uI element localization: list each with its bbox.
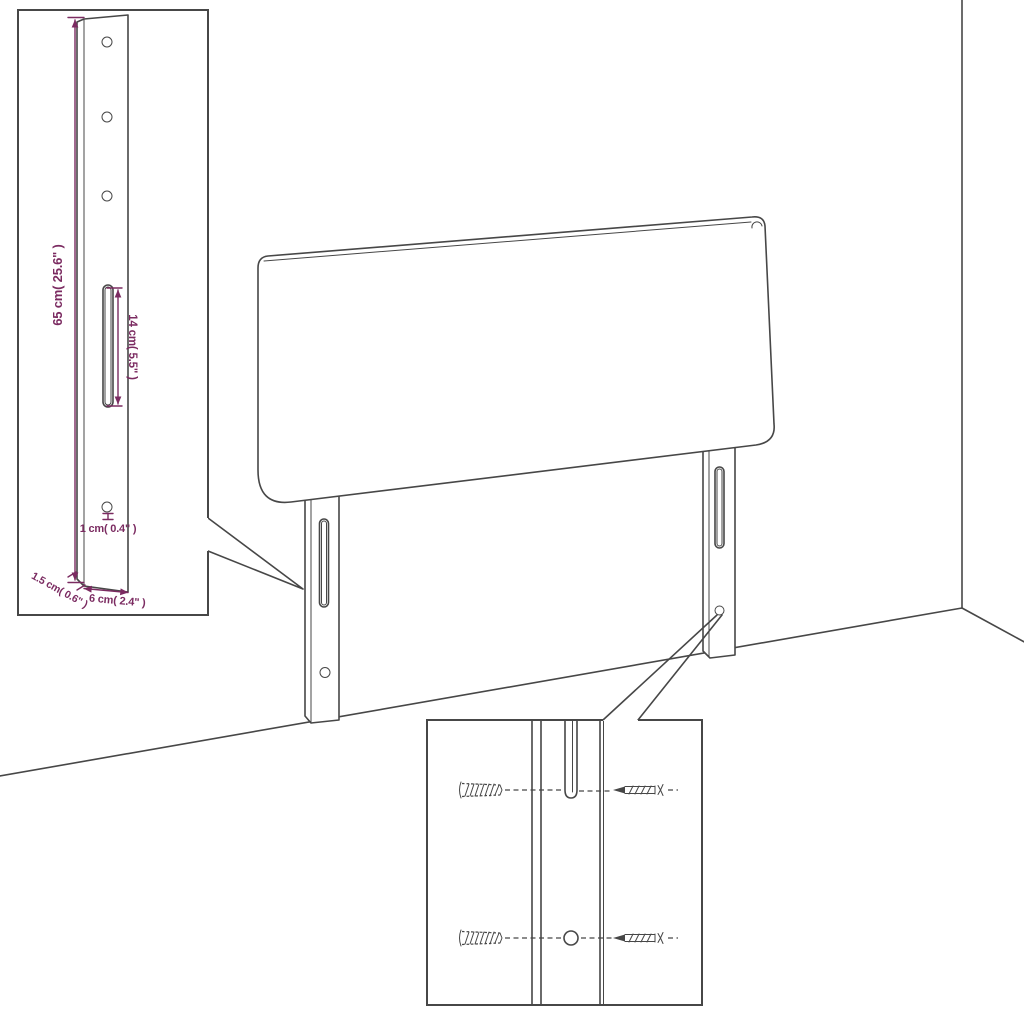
diagram-canvas: 65 cm( 25.6" ) 14 cm( 5.5" ) 1 cm( 0.4" … [0, 0, 1024, 1024]
dim-hole-diameter-label: 1 cm( 0.4" ) [80, 523, 137, 535]
dim-slot-length-label: 14 cm( 5.5" ) [126, 314, 138, 380]
panel-outline [258, 217, 774, 503]
headboard-panel [258, 217, 774, 503]
headboard-right-leg [703, 444, 735, 658]
callout-lines-left [208, 518, 303, 589]
mounting-detail-inset [427, 720, 702, 1005]
leg-detail-inset: 65 cm( 25.6" ) 14 cm( 5.5" ) 1 cm( 0.4" … [18, 10, 208, 615]
headboard-left-leg [305, 490, 339, 723]
right-leg-body [703, 444, 735, 658]
product-diagram: 65 cm( 25.6" ) 14 cm( 5.5" ) 1 cm( 0.4" … [0, 0, 1024, 1024]
floor-line-right [962, 608, 1024, 644]
dim-leg-height-label: 65 cm( 25.6" ) [50, 244, 65, 325]
callout-leg-detail [208, 518, 303, 589]
